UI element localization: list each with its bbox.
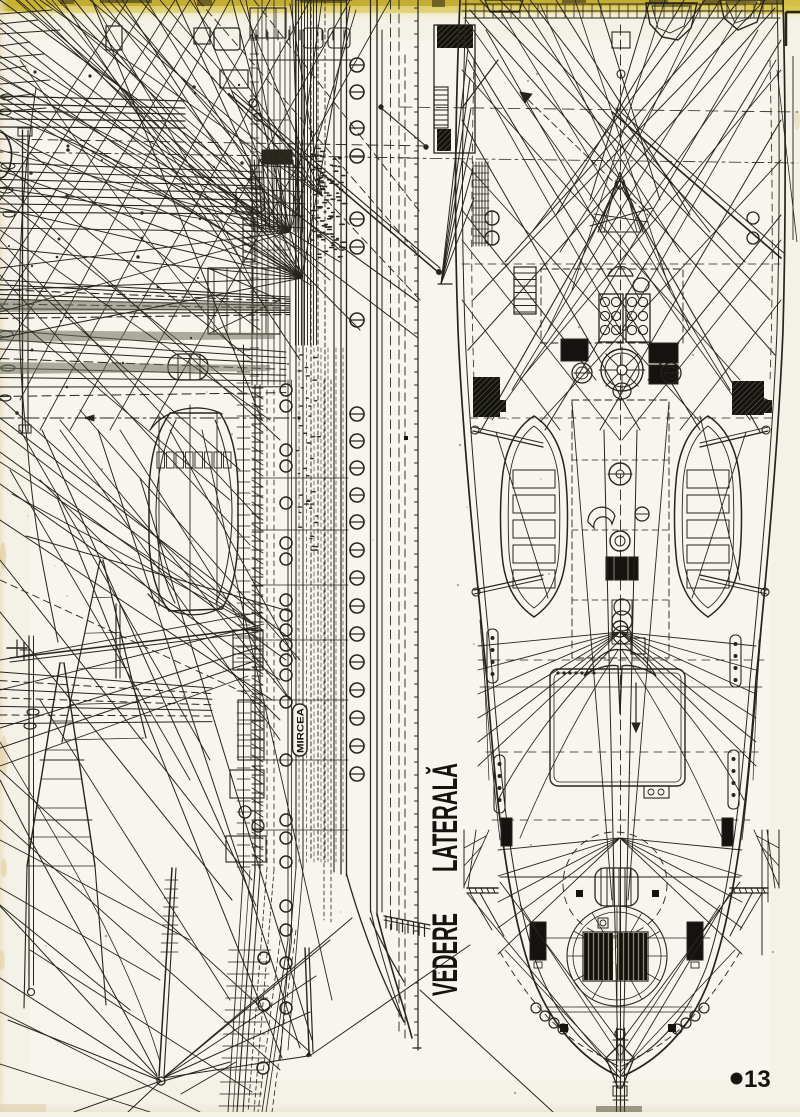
svg-text:MIRCEA: MIRCEA: [296, 708, 307, 753]
svg-text:VEDERE: VEDERE: [426, 913, 465, 996]
svg-text:13: 13: [744, 1066, 771, 1093]
svg-text:LATERALĂ: LATERALĂ: [426, 763, 465, 872]
